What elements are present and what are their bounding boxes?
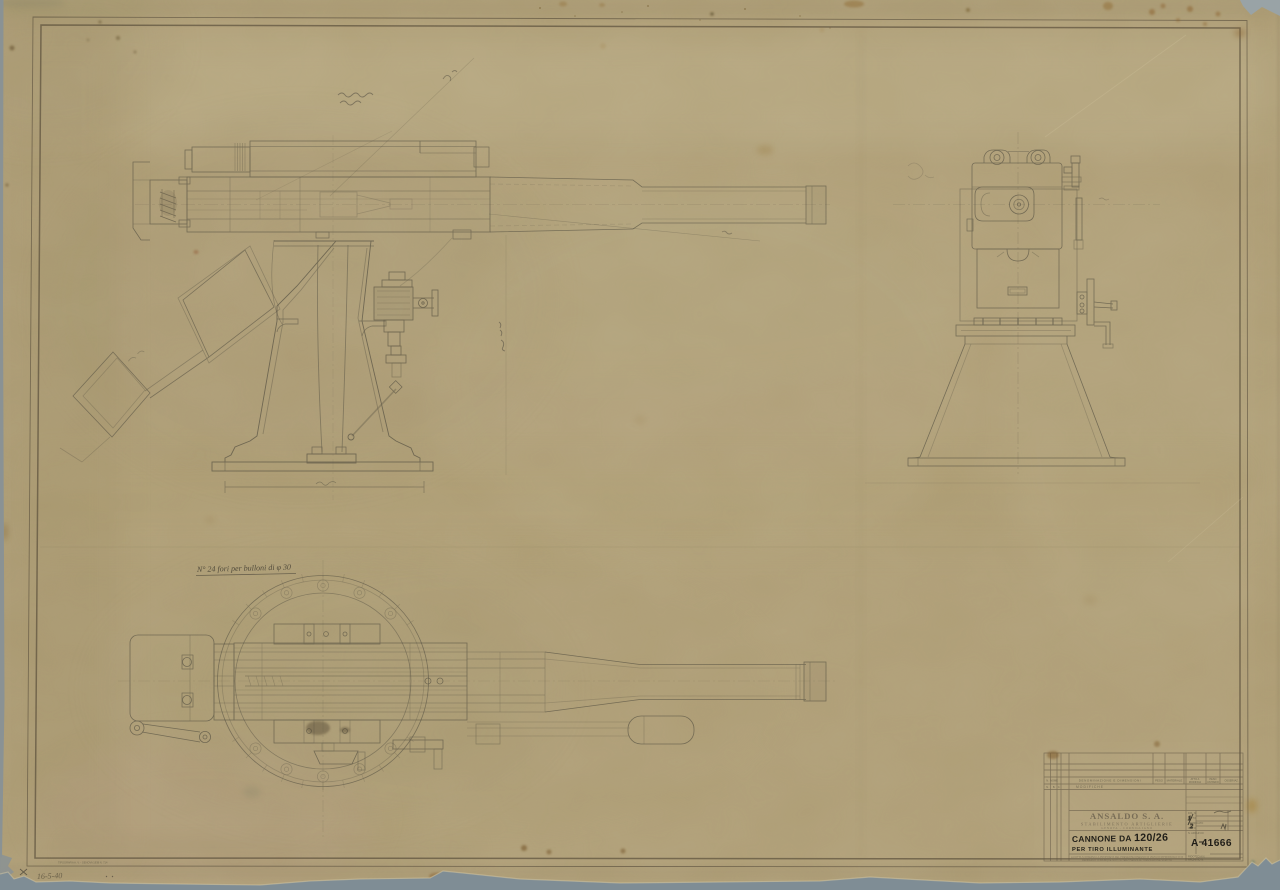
svg-text:NOME: NOME	[1050, 780, 1058, 783]
svg-text:DENOMINAZIONE E DIMENSIONI: DENOMINAZIONE E DIMENSIONI	[1079, 779, 1141, 783]
svg-text:PESO: PESO	[1155, 779, 1164, 783]
svg-text:ARCHIVIO N.: ARCHIVIO N.	[1188, 858, 1204, 862]
svg-text:N.: N.	[1046, 786, 1049, 789]
svg-text:N.: N.	[1046, 780, 1049, 783]
svg-text:TIPOGRAFIA A. V. - GENOVA 1938: TIPOGRAFIA A. V. - GENOVA 1938 N. 714	[58, 861, 108, 865]
svg-text:CANNONE DA 120/26: CANNONE DA 120/26	[1072, 832, 1168, 845]
svg-text:MATERIALE: MATERIALE	[1167, 779, 1183, 783]
svg-text:16-5-40: 16-5-40	[37, 871, 63, 881]
svg-text:PER TIRO ILLUMINANTE: PER TIRO ILLUMINANTE	[1072, 847, 1153, 853]
svg-text:OSSERVAZ.: OSSERVAZ.	[1224, 780, 1238, 783]
svg-text:N. ARCHIVIO: N. ARCHIVIO	[1188, 831, 1204, 835]
svg-text:B.: B.	[1053, 786, 1056, 789]
svg-text:MODIFICHE: MODIFICHE	[1076, 785, 1104, 789]
svg-text:MODIFICA: MODIFICA	[1189, 781, 1202, 784]
svg-text:UNITARIO: UNITARIO	[1207, 781, 1219, 784]
svg-text:1: 1	[1188, 816, 1191, 822]
svg-text:ANSALDO S. A.: ANSALDO S. A.	[1090, 811, 1164, 821]
svg-text:RENDERLO COMUNQUE NOTO A TERZI: RENDERLO COMUNQUE NOTO A TERZI SENZA AUT…	[1082, 859, 1172, 862]
svg-text:GENOVA - CORNIGLIANO: GENOVA - CORNIGLIANO	[1101, 826, 1152, 830]
svg-text:DIS. N.: DIS. N.	[1188, 811, 1197, 815]
svg-text:C.: C.	[1058, 786, 1061, 789]
svg-text:2: 2	[1190, 824, 1193, 830]
svg-text:A 41666: A 41666	[1191, 838, 1232, 849]
